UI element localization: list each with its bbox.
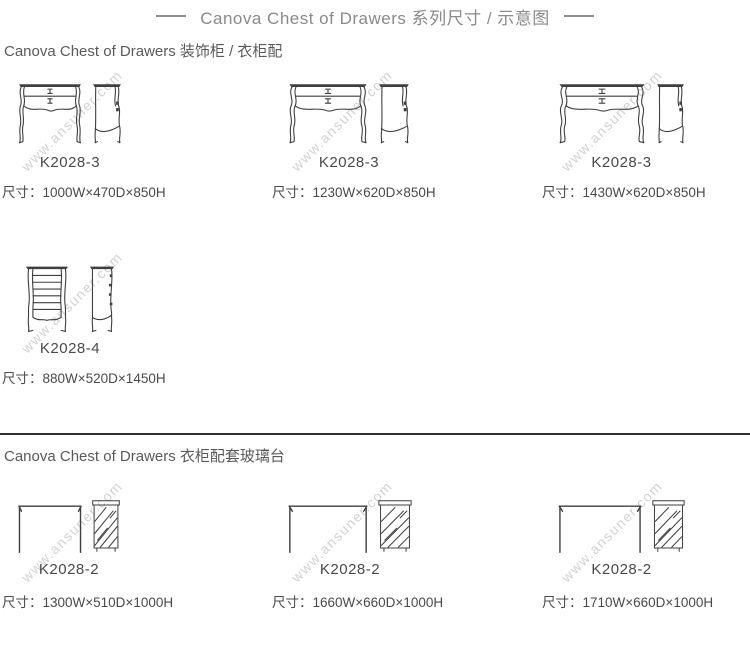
chest-side-view-drawing	[656, 81, 685, 147]
product-item: www.ansuner.com K2028-3 尺寸：1430W×620D×85…	[540, 77, 720, 201]
glass-table-front-view-drawing	[18, 502, 82, 554]
model-number: K2028-2	[18, 561, 120, 578]
product-figure: K2028-3	[558, 77, 685, 171]
dimensions-text: 尺寸：1230W×620D×850H	[270, 181, 540, 201]
product-item: www.ansuner.com K2028-4 尺寸：880W×520D×145…	[0, 259, 180, 387]
drawing-views	[25, 259, 115, 333]
model-number: K2028-3	[558, 154, 685, 171]
page-title: Canova Chest of Drawers 系列尺寸 / 示意图	[200, 4, 550, 29]
chest-front-view-drawing	[288, 81, 368, 147]
glass-table-front-view-drawing	[558, 502, 642, 554]
product-row: www.ansuner.com K2028-4 尺寸：880W×520D×145…	[0, 259, 750, 387]
model-number: K2028-4	[25, 340, 115, 357]
product-figure: K2028-2	[288, 496, 412, 578]
product-figure: K2028-2	[558, 496, 685, 578]
dimensions-text: 尺寸：1660W×660D×1000H	[270, 591, 540, 611]
drawing-views	[288, 77, 410, 147]
section-header-glass-table: Canova Chest of Drawers 衣柜配套玻璃台	[4, 445, 750, 466]
section-header-cabinet: Canova Chest of Drawers 装饰柜 / 衣柜配	[4, 40, 750, 61]
chest-front-view-drawing	[18, 81, 82, 147]
spec-sheet: Canova Chest of Drawers 系列尺寸 / 示意图 Canov…	[0, 0, 750, 611]
glass-table-front-view-drawing	[288, 502, 368, 554]
dimensions-text: 尺寸：880W×520D×1450H	[0, 367, 180, 387]
chest-front-view-drawing	[558, 81, 646, 147]
title-rule-left	[156, 15, 186, 17]
drawing-views	[18, 496, 120, 554]
product-row: www.ansuner.com K2028-2 尺寸：1300W×510D×10…	[0, 496, 750, 611]
product-item: www.ansuner.com K2028-3 尺寸：1230W×620D×85…	[270, 77, 540, 201]
dimensions-text: 尺寸：1710W×660D×1000H	[540, 591, 720, 611]
drawing-views	[558, 496, 685, 554]
drawing-views	[288, 496, 412, 554]
chest-side-view-drawing	[378, 81, 410, 147]
product-figure: K2028-2	[18, 496, 120, 578]
glass-panel-side-view-drawing	[92, 499, 120, 554]
product-row: www.ansuner.com K2028-3 尺寸：1000W×470D×85…	[0, 77, 750, 201]
glass-panel-side-view-drawing	[378, 499, 412, 554]
drawing-views	[558, 77, 685, 147]
glass-panel-side-view-drawing	[652, 499, 685, 554]
page-title-row: Canova Chest of Drawers 系列尺寸 / 示意图	[0, 0, 750, 26]
product-item: www.ansuner.com K2028-2 尺寸：1710W×660D×10…	[540, 496, 720, 611]
product-figure: K2028-3	[288, 77, 410, 171]
dimensions-text: 尺寸：1300W×510D×1000H	[0, 591, 270, 611]
product-item: www.ansuner.com K2028-2 尺寸：1300W×510D×10…	[0, 496, 270, 611]
section-divider	[0, 433, 750, 435]
tall-chest-front-view-drawing	[25, 265, 69, 333]
drawing-views	[18, 77, 122, 147]
tall-chest-side-view-drawing	[89, 265, 115, 333]
dimensions-text: 尺寸：1000W×470D×850H	[0, 181, 270, 201]
dimensions-text: 尺寸：1430W×620D×850H	[540, 181, 720, 201]
chest-side-view-drawing	[92, 81, 122, 147]
model-number: K2028-2	[288, 561, 412, 578]
product-item: www.ansuner.com K2028-3 尺寸：1000W×470D×85…	[0, 77, 270, 201]
product-item: www.ansuner.com K2028-2 尺寸：1660W×660D×10…	[270, 496, 540, 611]
product-figure: K2028-4	[25, 259, 115, 357]
product-figure: K2028-3	[18, 77, 122, 171]
title-rule-right	[564, 15, 594, 17]
model-number: K2028-3	[18, 154, 122, 171]
model-number: K2028-2	[558, 561, 685, 578]
model-number: K2028-3	[288, 154, 410, 171]
